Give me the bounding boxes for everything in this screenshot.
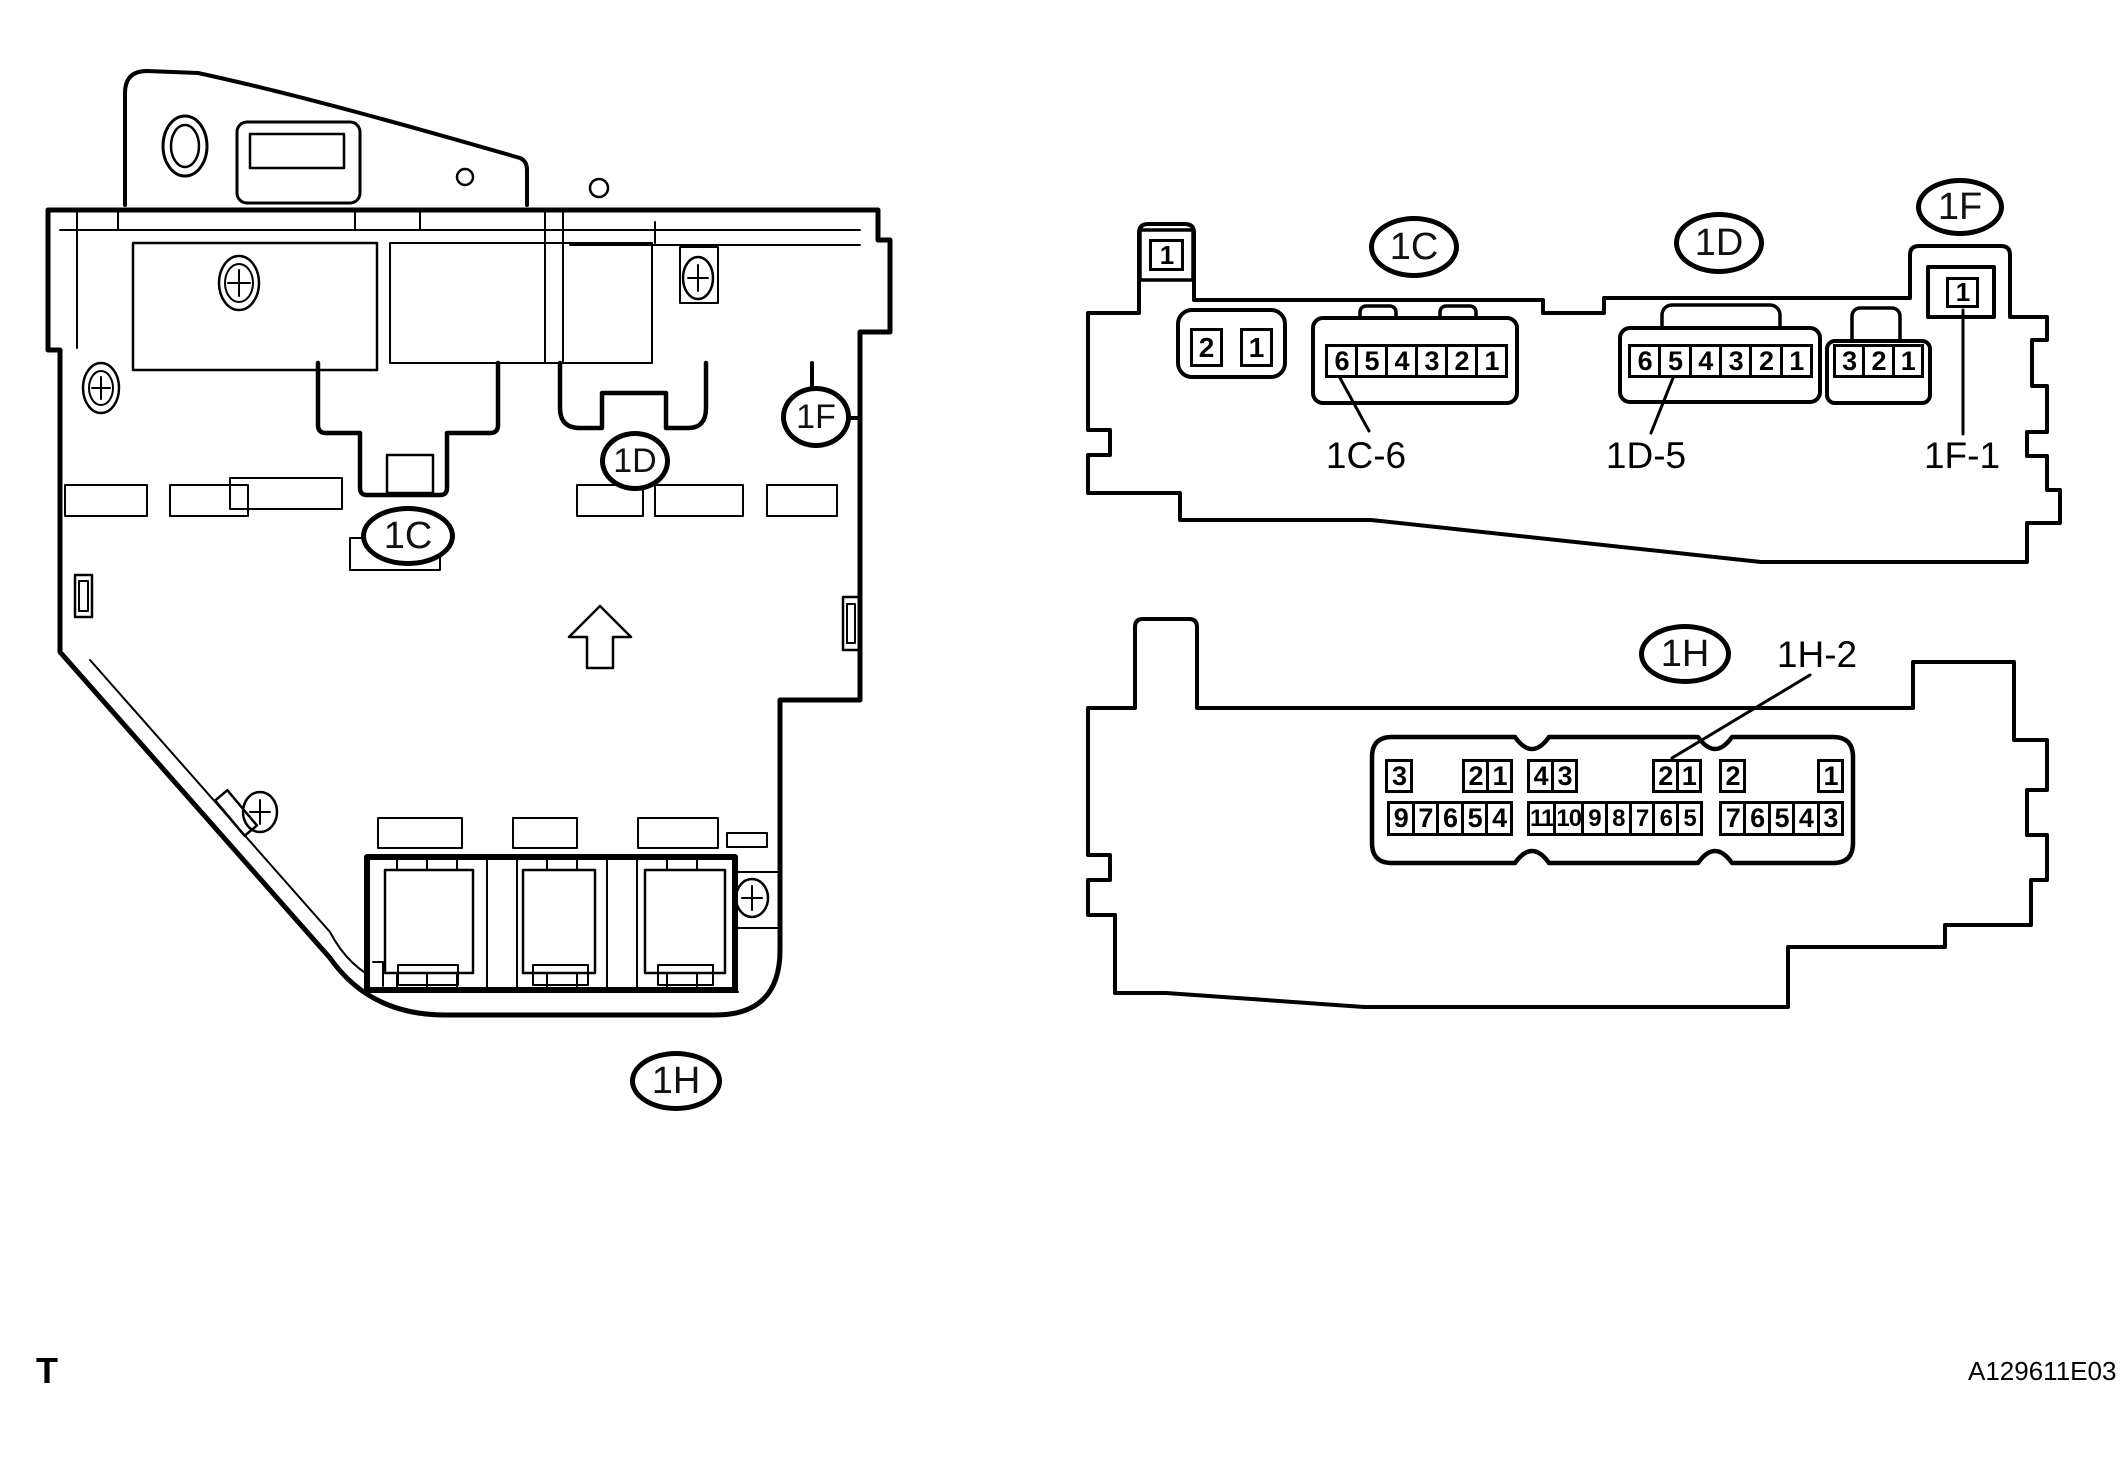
- figure-page: 1C1D1F1H1C1D1F1H121654321654321321132143…: [0, 0, 2124, 1459]
- pin-number: 2: [1190, 328, 1223, 367]
- pin-number: 3: [1817, 804, 1841, 833]
- pin-number: 4: [1385, 347, 1415, 375]
- pin-number: 5: [1658, 347, 1688, 375]
- pin-number: 1: [1240, 328, 1273, 367]
- screw-icon: [680, 247, 718, 303]
- callout-1f: 1F: [781, 386, 851, 448]
- junction-box-drawing: [48, 71, 890, 1015]
- pin-number: 1: [1780, 347, 1810, 375]
- pin-row-1h: 1: [1817, 759, 1844, 793]
- footer-section-mark: T: [36, 1350, 58, 1392]
- pin-number: 7: [1412, 804, 1437, 833]
- pin-row-1h: 3: [1385, 759, 1413, 793]
- pin-row-1h: 21: [1652, 759, 1702, 793]
- pin-number: 3: [1551, 762, 1575, 790]
- callout-top-1f: 1F: [1916, 178, 2004, 236]
- pin-row-1h: 76543: [1719, 801, 1844, 836]
- pin-number: 10: [1553, 804, 1581, 833]
- pin-number: 1: [1475, 347, 1505, 375]
- pin-number: 1: [1820, 762, 1841, 790]
- connector-1h-housing: [1372, 737, 1853, 863]
- pin-row-corner-tab: 1: [1149, 239, 1184, 271]
- screw-icon: [215, 790, 277, 836]
- pin-number: 1: [1152, 242, 1181, 268]
- pin-number: 2: [1445, 347, 1475, 375]
- pin-number: 11: [1530, 804, 1553, 833]
- pin-callout-1f1: 1F-1: [1924, 435, 2000, 477]
- pin-number: 2: [1722, 762, 1743, 790]
- pin-number: 5: [1676, 804, 1700, 833]
- pin-row-1h: 43: [1527, 759, 1578, 793]
- callout-1c: 1C: [361, 506, 455, 566]
- pin-number: 2: [1655, 762, 1676, 790]
- pin-row-1h: 111098765: [1527, 801, 1703, 836]
- pin-callout-1c6: 1C-6: [1326, 435, 1406, 477]
- pin-row-1f: 1: [1946, 277, 1979, 308]
- pin-number: 8: [1605, 804, 1629, 833]
- screw-icon: [736, 872, 781, 928]
- diagram-canvas: [0, 0, 2124, 1459]
- callout-bottom-1h: 1H: [1639, 624, 1731, 684]
- pin-row-1c: 654321: [1325, 344, 1508, 378]
- screw-icon: [219, 256, 259, 310]
- pin-row-pair: 21: [1190, 328, 1276, 367]
- figure-code: A129611E03: [1968, 1356, 2116, 1387]
- pin-number: 4: [1530, 762, 1551, 790]
- callout-1h: 1H: [630, 1051, 722, 1111]
- pin-row-1h: 97654: [1387, 801, 1513, 836]
- pin-row-321: 321: [1833, 344, 1924, 378]
- pin-callout-1d5: 1D-5: [1606, 435, 1686, 477]
- pin-number: 3: [1388, 762, 1410, 790]
- pin-number: 7: [1722, 804, 1743, 833]
- pin-row-1h: 21: [1462, 759, 1513, 793]
- pin-number: 9: [1581, 804, 1605, 833]
- pin-number: 6: [1631, 347, 1658, 375]
- pin-number: 5: [1768, 804, 1792, 833]
- connector-view-top: [1088, 224, 2060, 562]
- callout-top-1c: 1C: [1369, 216, 1459, 278]
- pin-number: 4: [1485, 804, 1510, 833]
- pin-row-1h: 2: [1719, 759, 1746, 793]
- pin-number: 6: [1652, 804, 1676, 833]
- pin-number: 2: [1465, 762, 1486, 790]
- pin-number: 6: [1743, 804, 1767, 833]
- pin-number: 3: [1836, 347, 1862, 375]
- pin-callout-1h2: 1H-2: [1777, 634, 1857, 676]
- callout-1d: 1D: [600, 431, 670, 491]
- pin-row-1d: 654321: [1628, 344, 1813, 378]
- pin-number: 5: [1461, 804, 1486, 833]
- pin-number: 9: [1390, 804, 1412, 833]
- pin-number: 6: [1436, 804, 1461, 833]
- pin-number: 2: [1862, 347, 1891, 375]
- pin-number: 1: [1892, 347, 1921, 375]
- pin-number: 6: [1328, 347, 1355, 375]
- pin-number: 1: [1676, 762, 1700, 790]
- pin-number: 1: [1486, 762, 1510, 790]
- up-arrow-icon: [569, 606, 631, 668]
- pin-number: 4: [1689, 347, 1719, 375]
- pin-number: 7: [1629, 804, 1653, 833]
- pin-number: 1: [1949, 280, 1976, 305]
- pin-number: 5: [1355, 347, 1385, 375]
- pin-number: 3: [1415, 347, 1445, 375]
- screw-icon: [83, 363, 119, 413]
- pin-number: 4: [1792, 804, 1816, 833]
- callout-top-1d: 1D: [1674, 212, 1764, 274]
- pin-number: 2: [1749, 347, 1779, 375]
- pin-number: 3: [1719, 347, 1749, 375]
